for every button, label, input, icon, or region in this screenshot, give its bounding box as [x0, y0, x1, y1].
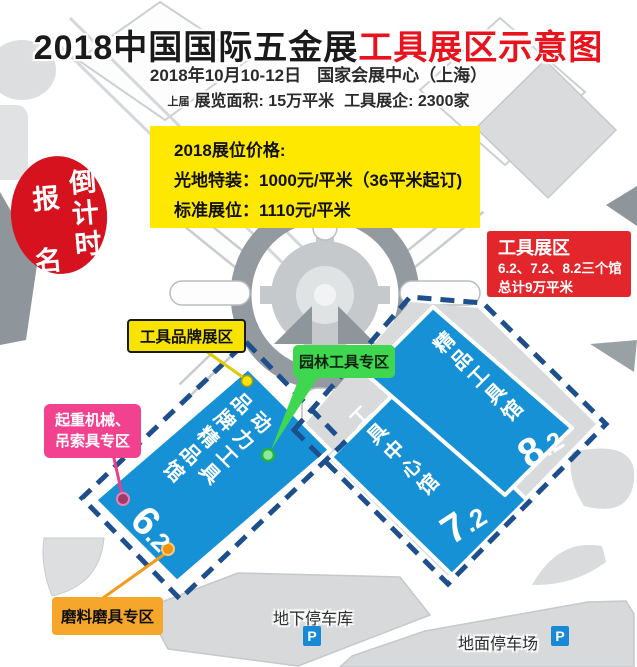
label-brand-tools-zone: 工具品牌展区: [127, 319, 246, 353]
lifting-line-2: 吊索具专区: [55, 431, 130, 452]
event-venue: 国家会展中心（上海）: [317, 66, 487, 85]
zone-halls: 6.2、7.2、8.2三个馆: [498, 259, 620, 278]
brand-marker-dot: [242, 376, 253, 387]
floorplan-infographic: 2018中国国际五金展工具展区示意图 2018年10月10-12日国家会展中心（…: [0, 0, 637, 667]
event-date: 2018年10月10-12日: [150, 66, 301, 85]
price-info-box: 2018展位价格: 光地特装：1000元/平米（36平米起订) 标准展位：111…: [150, 126, 480, 228]
garden-marker-dot: [262, 449, 274, 461]
ground-parking-label: 地面停车场: [433, 630, 563, 654]
price-title: 2018展位价格:: [174, 136, 480, 166]
stats-prefix: 上届: [168, 96, 190, 108]
tool-zone-summary-box: 工具展区 6.2、7.2、8.2三个馆 总计9万平米: [487, 231, 631, 297]
stats-exhibitors: 工具展企: 2300家: [344, 93, 469, 110]
price-standard-booth: 标准展位：1110元/平米: [174, 196, 480, 226]
price-raw-space: 光地特装：1000元/平米（36平米起订): [174, 166, 480, 196]
label-garden-tools-zone: 园林工具专区: [293, 345, 395, 378]
parking-icon: P: [303, 626, 321, 646]
label-abrasives-zone: 磨料磨具专区: [52, 597, 163, 635]
label-lifting-rigging-zone: 起重机械、 吊索具专区: [44, 404, 141, 458]
badge-right-column: 倒计时: [64, 167, 102, 262]
parking-icon: P: [551, 626, 569, 646]
event-date-venue: 2018年10月10-12日国家会展中心（上海）: [0, 61, 637, 86]
badge-char-1: 报: [31, 176, 61, 217]
stats-area: 展览面积: 15万平米: [195, 93, 335, 110]
zone-title: 工具展区: [498, 237, 620, 259]
zone-total-area: 总计9万平米: [498, 278, 620, 297]
badge-char-2: 名: [33, 238, 63, 279]
previous-edition-stats: 上届展览面积: 15万平米工具展企: 2300家: [0, 87, 637, 111]
lifting-line-1: 起重机械、: [55, 410, 130, 431]
